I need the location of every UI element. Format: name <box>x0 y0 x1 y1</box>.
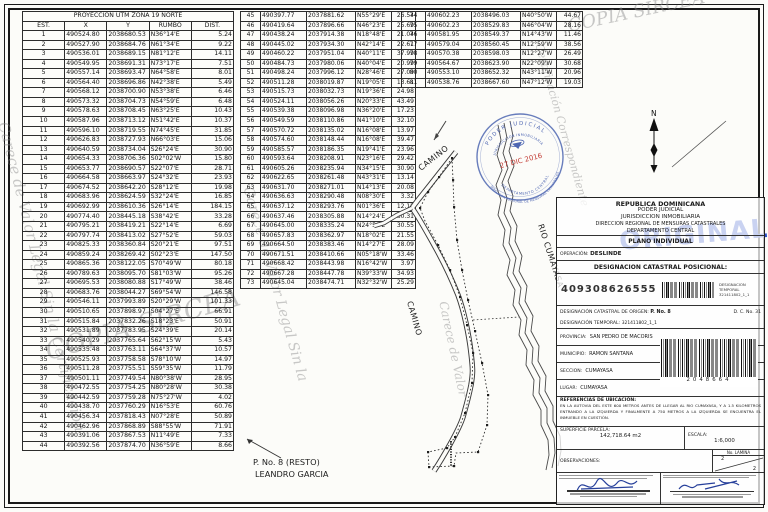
col-header-x: X <box>65 21 107 31</box>
tb-poder: PODER JUDICIAL <box>557 207 764 214</box>
desig-temp-small-label: DESIGNACION TEMPORAL <box>719 282 760 292</box>
table-row: 81490538.762038667.60N47°12'W19.03 <box>402 78 583 88</box>
tb-jurisdiccion: JURISDICCION INMOBILIARIA <box>557 214 764 221</box>
municipio-value: RAMON SANTANA <box>589 351 633 357</box>
table-row: 46490419.642037896.66N46°23'E25.69 <box>241 21 416 31</box>
table-row: 49490460.222037951.04N40°11'E37.99 <box>241 50 416 60</box>
table-row: 6490564.402038696.86N42°38'E5.49 <box>23 78 234 88</box>
temporal-value: 321411802_1_1 <box>622 321 657 326</box>
seccion-label: SECCION: <box>560 369 582 374</box>
coordinate-table-1: PROYECCION UTM ZONA 19 NORTE EST. X Y RU… <box>22 11 234 451</box>
origen-label: DESIGNACIÓN CATASTRAL DE ORIGEN: <box>560 310 649 315</box>
table-row: 38490472.552037754.25N80°28'W30.38 <box>23 384 234 394</box>
table-row: 79490564.672038623.90N22°09'W30.68 <box>402 59 583 69</box>
table-row: 52490511.282038019.87N19°05'E13.61 <box>241 78 416 88</box>
table-row: 8490573.322038704.73N54°59'E6.48 <box>23 97 234 107</box>
table-row: 7490568.122038700.90N53°38'E6.46 <box>23 88 234 98</box>
table-row: 2490527.902038684.76N61°34'E9.22 <box>23 40 234 50</box>
coordinate-table-3: 74490602.232038496.03N40°50'W44.67754906… <box>401 11 583 88</box>
table-row: 77490579.042038560.45N12°59'W38.56 <box>402 40 583 50</box>
table-row: 31490515.842037832.26S18°23'E50.91 <box>23 317 234 327</box>
table-row: 34490535.482037763.11S64°37'W10.57 <box>23 346 234 356</box>
dc-number: D. C. No. 31 <box>733 310 761 315</box>
operacion-label: OPERACIÓN: <box>560 252 589 257</box>
seal-date: 27 DIC 2016 <box>499 152 544 170</box>
desig-pos-label: DESIGNACION CATASTRAL POSICIONAL: <box>557 261 764 274</box>
table-row: 42490462.962037868.89S88°55'W71.91 <box>23 422 234 432</box>
table-title: PROYECCION UTM ZONA 19 NORTE <box>23 12 234 22</box>
lamina-top: 2 <box>721 456 724 462</box>
table-row: 24490859.242038269.42S02°23'E147.50 <box>23 250 234 260</box>
table-row: 41490456.342037818.43N07°28'E50.89 <box>23 412 234 422</box>
table-row: 35490525.932037758.58S78°10'W14.97 <box>23 355 234 365</box>
provincia-label: PROVINCIA: <box>560 335 587 340</box>
desig-pos-value: 409308626555 <box>561 284 657 295</box>
table-row: 17490674.522038642.20S28°12'E19.98 <box>23 183 234 193</box>
parcel-boundary <box>419 157 519 468</box>
table-row: 5490557.142038693.47N64°58'E8.01 <box>23 69 234 79</box>
north-label: N <box>651 109 657 118</box>
table-row: 20490774.402038445.18S38°42'E33.28 <box>23 212 234 222</box>
table-row: 12490626.832038727.93N66°03'E15.06 <box>23 136 234 146</box>
barcode-small <box>662 282 714 298</box>
surveyor-signature-box <box>557 473 661 504</box>
table-row: 27490695.532038080.88S17°49'W38.46 <box>23 279 234 289</box>
table-row: 33490540.292037765.64S62°15'W5.43 <box>23 336 234 346</box>
table-row: 26490789.632038095.70S81°03'W95.26 <box>23 269 234 279</box>
parcel-note-line1: P. No. 8 (RESTO) <box>253 457 320 467</box>
table-row: 13490640.592038734.04S26°24'E30.90 <box>23 145 234 155</box>
table-row: 32490531.892037783.95S24°39'E20.14 <box>23 327 234 337</box>
survey-map: CAMINO CAMINO RIO CUMAYASA P. No. 8 (RES… <box>235 95 565 477</box>
municipio-label: MUNICIPIO: <box>560 352 586 357</box>
table-row: 44490392.562037874.70N36°59'E8.66 <box>23 441 234 451</box>
temporal-label: DESIGNACIÓN TEMPORAL: <box>560 321 620 326</box>
table-row: 25490865.362038122.05S70°49'W80.18 <box>23 260 234 270</box>
lugar-value: CUMAYASA <box>580 385 607 391</box>
seccion-value: CUMAYASA <box>585 368 612 374</box>
tb-direccion: DIRECCION REGIONAL DE MENSURAS CATASTRAL… <box>557 221 764 228</box>
table-row: 4490549.952038691.31N73°17'E7.51 <box>23 59 234 69</box>
col-header-rumbo: RUMBO <box>149 21 191 31</box>
col-header-est: EST. <box>23 21 65 31</box>
table-row: 51490498.242037996.12N28°46'E27.09 <box>241 69 416 79</box>
barcode-large: 2048664 <box>660 339 758 387</box>
lamina-bottom: 2 <box>753 466 756 472</box>
stray-diagonal-line <box>672 121 726 167</box>
north-arrowhead <box>650 118 659 131</box>
table-row: 21490795.212038419.21S22°14'E6.69 <box>23 222 234 232</box>
table-row: 22490797.742038413.02S27°52'E59.03 <box>23 231 234 241</box>
table-row: 37490501.112037749.54N80°38'W28.95 <box>23 374 234 384</box>
table-row: 36490511.282037755.51S59°35'W11.79 <box>23 365 234 375</box>
parcel-note-line2: LEANDRO GARCIA <box>255 469 329 477</box>
lugar-label: LUGAR: <box>560 386 577 391</box>
camino-side-label: CAMINO <box>405 300 423 337</box>
cadastral-plan-document: COPIA SIRCEA COPIA SIRCEA Carece de Valo… <box>0 0 768 512</box>
table-row: 74490602.232038496.03N40°50'W44.67 <box>402 12 583 22</box>
table-row: 16490664.582038663.97S24°32'E23.93 <box>23 174 234 184</box>
superficie-value: 142,718.64 m2 <box>560 433 681 439</box>
svg-text:DIRECCION REGIONAL DE MENSURAS: DIRECCION REGIONAL DE MENSURAS CATASTRAL… <box>489 170 565 210</box>
operacion-value: DESLINDE <box>590 251 621 257</box>
table-row: 29490546.112037993.89S20°29'W101.33 <box>23 298 234 308</box>
road-camino <box>374 152 473 471</box>
table-row: 14490654.332038706.36S02°02'W15.80 <box>23 155 234 165</box>
table-row: 45490397.772037881.62N55°29'E26.54 <box>241 12 416 22</box>
table-row: 15490653.772038690.57S22°07'E28.71 <box>23 164 234 174</box>
table-row: 50490484.732037980.06N40°04'E20.99 <box>241 59 416 69</box>
parcel-owner-note: P. No. 8 (RESTO) LEANDRO GARCIA <box>247 439 329 477</box>
table-row: 1490524.802038680.53N36°14'E5.24 <box>23 31 234 41</box>
poder-judicial-seal: PODER JUDICIAL JURISDICCION INMOBILIARIA… <box>469 106 565 212</box>
table-row: 39490442.592037759.28N75°27'W4.02 <box>23 393 234 403</box>
title-block: REPUBLICA DOMINICANA PODER JUDICIAL JURI… <box>556 197 765 505</box>
table-row: 30490510.652037898.97S04°27'E66.91 <box>23 307 234 317</box>
svg-text:DEPARTAMENTO CENTRAL: DEPARTAMENTO CENTRAL <box>500 174 553 201</box>
road-pointer-arrow <box>434 121 446 140</box>
north-diamond <box>651 143 658 157</box>
table-row: 3490536.012038689.15N81°12'E14.11 <box>23 50 234 60</box>
table-row: 78490570.382038598.03N12°27'W26.49 <box>402 50 583 60</box>
table-row: 75490602.232038529.83N46°04'W28.16 <box>402 21 583 31</box>
table-row: 76490581.952038549.37N14°43'W11.46 <box>402 31 583 41</box>
table-row: 10490587.962038713.12N51°42'E10.37 <box>23 117 234 127</box>
seal-arc-bottom1: DEPARTAMENTO CENTRAL <box>500 174 553 201</box>
table-row: 23490825.332038360.84S20°21'E97.51 <box>23 241 234 251</box>
origen-value: P. No. 8 <box>650 310 670 315</box>
desig-temp-small-value: 321411802_1_1 <box>719 292 760 297</box>
table-row: 19490692.992038610.36S26°14'E184.15 <box>23 202 234 212</box>
north-arrow: N <box>630 105 750 185</box>
table-row: 18490683.962038624.59S32°24'E16.85 <box>23 193 234 203</box>
barcode-number: 2048664 <box>660 377 758 383</box>
table-row: 40490438.702037760.29N16°53'E60.76 <box>23 403 234 413</box>
tb-plano: PLANO INDIVIDUAL <box>557 236 764 248</box>
observaciones-label: OBSERVACIONES: <box>560 459 600 464</box>
col-header-dist: DIST. <box>191 21 233 31</box>
table-row: 80490553.102038652.32N43°11'W20.96 <box>402 69 583 79</box>
table-row: 9490578.632038708.45N63°25'E10.43 <box>23 107 234 117</box>
lamina-box: No. LAMINA 2 2 <box>712 450 764 472</box>
river-lines <box>496 121 561 470</box>
table-row: 47490438.242037914.38N18°48'E21.04 <box>241 31 416 41</box>
director-signature-box <box>661 473 765 505</box>
col-header-y: Y <box>107 21 149 31</box>
table-row: 43490391.062037867.53N11°49'E7.33 <box>23 432 234 442</box>
escala-value: 1:6,000 <box>688 438 761 444</box>
table-row: 28490683.762038044.27S69°54'W146.58 <box>23 288 234 298</box>
tb-departamento: DEPARTAMENTO CENTRAL <box>557 228 764 236</box>
seal-arc-bottom2: DIRECCION REGIONAL DE MENSURAS CATASTRAL… <box>489 170 565 210</box>
referencias-text: EN LA AUTOVIA DEL ESTE 600 METROS ANTES … <box>560 403 761 421</box>
tb-country: REPUBLICA DOMINICANA <box>557 198 764 207</box>
table-row: 11490596.102038719.55N74°45'E31.85 <box>23 126 234 136</box>
watermark-copia-sircea: COPIA SIRCEA <box>566 0 707 37</box>
table-row: 48490445.022037934.30N42°14'E22.61 <box>241 40 416 50</box>
provincia-value: SAN PEDRO DE MACORIS <box>590 334 653 340</box>
